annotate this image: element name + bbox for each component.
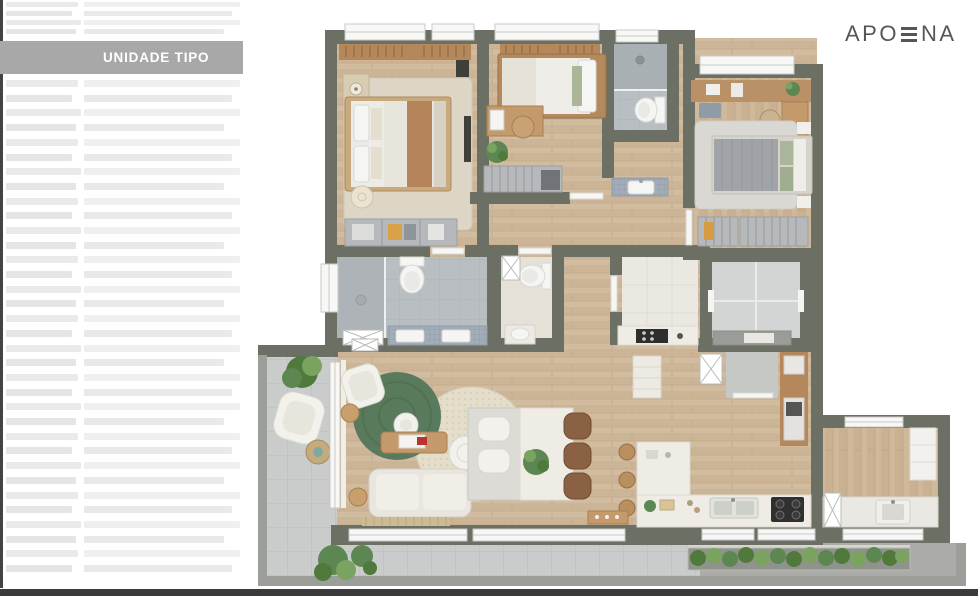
floorplan-image — [0, 0, 978, 596]
bottom-bar — [0, 589, 978, 596]
page: { "window": { "width": 978, "height": 59… — [0, 0, 978, 596]
planter — [688, 545, 910, 570]
dining-area — [468, 408, 591, 500]
